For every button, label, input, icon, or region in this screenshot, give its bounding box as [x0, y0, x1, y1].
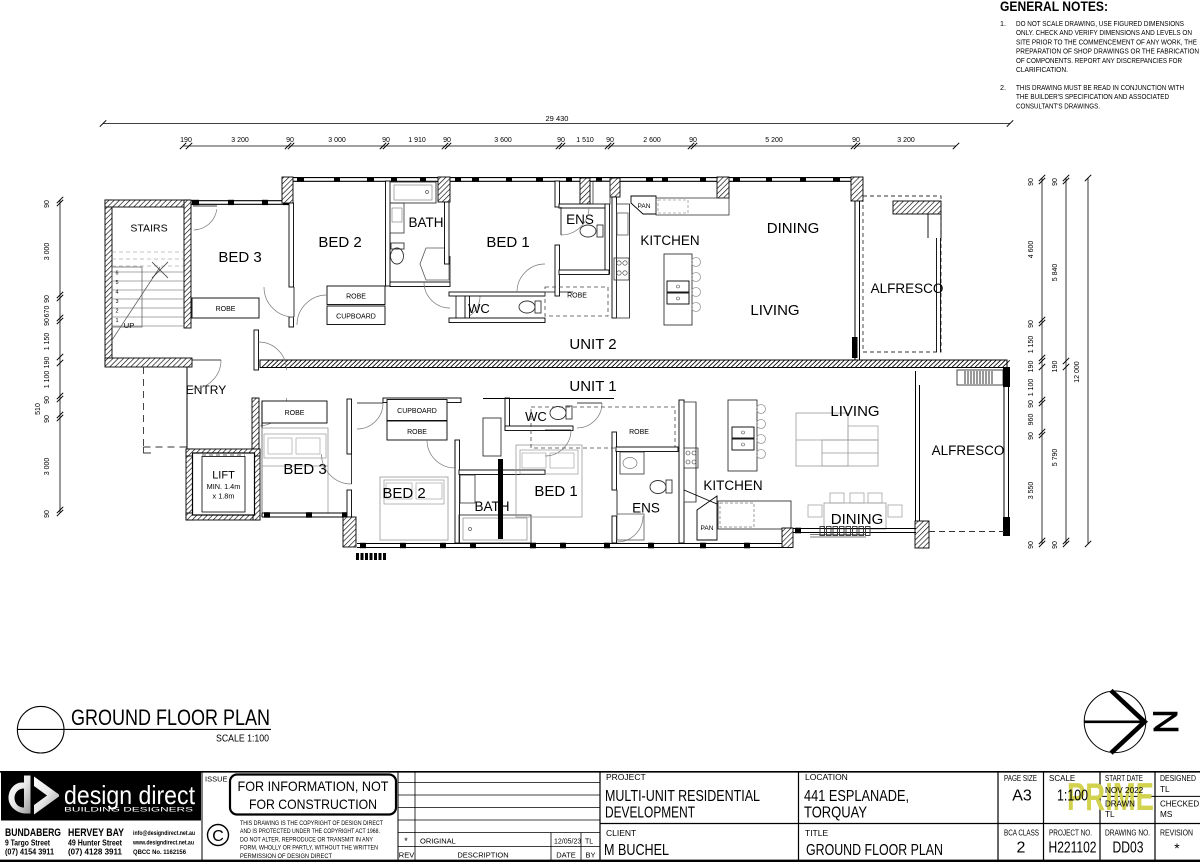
- svg-text:KITCHEN: KITCHEN: [640, 233, 699, 248]
- svg-text:1 100: 1 100: [1028, 379, 1035, 397]
- svg-text:BY: BY: [585, 851, 595, 860]
- svg-text:MS: MS: [1160, 810, 1173, 819]
- svg-text:90: 90: [1028, 178, 1035, 186]
- svg-text:GROUND FLOOR PLAN: GROUND FLOOR PLAN: [71, 705, 270, 730]
- svg-text:5 200: 5 200: [765, 137, 783, 144]
- svg-text:BED 3: BED 3: [218, 249, 261, 266]
- svg-text:3 200: 3 200: [231, 137, 249, 144]
- svg-text:(07) 4154 3911: (07) 4154 3911: [5, 847, 54, 857]
- svg-text:SITE PRIOR TO THE COMMENCEMENT: SITE PRIOR TO THE COMMENCEMENT OF ANY WO…: [1016, 37, 1197, 46]
- svg-text:*: *: [404, 836, 408, 846]
- svg-text:DRAWN: DRAWN: [1105, 800, 1135, 809]
- svg-text:info@designdirect.net.au: info@designdirect.net.au: [133, 830, 195, 837]
- svg-text:BED 1: BED 1: [534, 483, 577, 500]
- svg-text:BATH: BATH: [474, 499, 509, 514]
- svg-text:A3: A3: [1012, 788, 1032, 805]
- svg-text:90: 90: [44, 510, 51, 518]
- svg-text:960: 960: [1028, 414, 1035, 426]
- svg-text:PREPARATION OF SHOP DRAWINGS O: PREPARATION OF SHOP DRAWINGS OR THE FABR…: [1016, 47, 1199, 56]
- svg-text:GENERAL NOTES:: GENERAL NOTES:: [1000, 0, 1108, 14]
- svg-text:*: *: [1174, 840, 1180, 856]
- svg-text:UNIT 1: UNIT 1: [569, 378, 616, 395]
- svg-text:LIVING: LIVING: [750, 302, 799, 319]
- svg-text:90: 90: [1028, 320, 1035, 328]
- svg-text:DO NOT SCALE DRAWING, USE FIGU: DO NOT SCALE DRAWING, USE FIGURED DIMENS…: [1016, 19, 1184, 28]
- svg-text:REVISION: REVISION: [1160, 829, 1193, 838]
- svg-text:MIN. 1.4m: MIN. 1.4m: [207, 482, 241, 491]
- svg-text:1 150: 1 150: [44, 333, 51, 351]
- svg-text:DRAWING NO.: DRAWING NO.: [1105, 829, 1150, 838]
- svg-text:REV: REV: [399, 851, 414, 860]
- svg-text:TL: TL: [1160, 785, 1170, 794]
- svg-text:12/05/23: 12/05/23: [554, 839, 581, 846]
- svg-text:90: 90: [44, 295, 51, 303]
- svg-text:UNIT 2: UNIT 2: [569, 336, 616, 353]
- svg-text:DEVELOPMENT: DEVELOPMENT: [605, 805, 695, 822]
- svg-text:ISSUE: ISSUE: [205, 775, 228, 784]
- svg-text:90: 90: [286, 137, 294, 144]
- svg-text:29 430: 29 430: [546, 114, 569, 123]
- svg-text:LIVING: LIVING: [830, 403, 879, 420]
- svg-text:ROBE: ROBE: [407, 429, 427, 436]
- svg-text:1 510: 1 510: [576, 137, 594, 144]
- svg-text:(07) 4128 3911: (07) 4128 3911: [68, 847, 122, 857]
- svg-text:www.designdirect.net.au: www.designdirect.net.au: [132, 840, 194, 847]
- svg-text:GROUND FLOOR PLAN: GROUND FLOOR PLAN: [806, 842, 943, 859]
- svg-text:3 550: 3 550: [1028, 482, 1035, 500]
- svg-text:KITCHEN: KITCHEN: [703, 478, 762, 493]
- svg-text:MULTI-UNIT RESIDENTIAL: MULTI-UNIT RESIDENTIAL: [605, 788, 760, 805]
- svg-text:ALFRESCO: ALFRESCO: [871, 281, 944, 296]
- svg-text:DO NOT ALTER, REPRODUCE OR TRA: DO NOT ALTER, REPRODUCE OR TRANSMIT IN A…: [240, 836, 374, 843]
- svg-text:PROJECT NO.: PROJECT NO.: [1049, 829, 1092, 838]
- svg-text:DINING: DINING: [831, 511, 884, 528]
- svg-text:TORQUAY: TORQUAY: [804, 805, 867, 822]
- svg-text:90: 90: [44, 396, 51, 404]
- svg-text:DINING: DINING: [767, 220, 820, 237]
- svg-text:NOV 2022: NOV 2022: [1105, 786, 1144, 795]
- svg-text:LIFT: LIFT: [212, 470, 235, 482]
- svg-text:BED 1: BED 1: [486, 234, 529, 251]
- svg-text:DD03: DD03: [1113, 839, 1144, 856]
- svg-text:STAIRS: STAIRS: [130, 223, 167, 235]
- svg-text:5: 5: [115, 280, 118, 286]
- svg-text:PAN: PAN: [638, 203, 651, 210]
- svg-text:FOR CONSTRUCTION: FOR CONSTRUCTION: [249, 796, 377, 812]
- svg-text:90: 90: [1052, 178, 1059, 186]
- svg-text:BED 2: BED 2: [382, 485, 425, 502]
- svg-text:3 000: 3 000: [328, 137, 346, 144]
- svg-text:ORIGINAL: ORIGINAL: [420, 837, 456, 846]
- svg-text:ENS: ENS: [566, 212, 594, 227]
- svg-text:CUPBOARD: CUPBOARD: [397, 408, 437, 415]
- svg-text:BATH: BATH: [408, 215, 443, 230]
- svg-text:3 000: 3 000: [44, 243, 51, 261]
- svg-text:PAN: PAN: [701, 525, 714, 532]
- svg-text:SCALE 1:100: SCALE 1:100: [216, 733, 269, 745]
- svg-text:90: 90: [382, 137, 390, 144]
- svg-text:SCALE: SCALE: [1049, 774, 1075, 783]
- svg-text:3 200: 3 200: [897, 137, 915, 144]
- svg-text:BCA CLASS: BCA CLASS: [1004, 829, 1039, 838]
- svg-text:PERMISSION OF DESIGN DIRECT: PERMISSION OF DESIGN DIRECT: [240, 853, 332, 860]
- svg-text:3 600: 3 600: [494, 137, 512, 144]
- svg-text:THIS DRAWING MUST BE READ IN C: THIS DRAWING MUST BE READ IN CONJUNCTION…: [1016, 83, 1184, 92]
- svg-text:H221102: H221102: [1049, 839, 1097, 856]
- svg-text:90: 90: [1028, 541, 1035, 549]
- svg-text:1:100: 1:100: [1057, 788, 1088, 805]
- svg-text:1 910: 1 910: [408, 137, 426, 144]
- svg-text:ROBE: ROBE: [285, 410, 305, 417]
- svg-text:1 150: 1 150: [1028, 336, 1035, 354]
- svg-text:DATE: DATE: [556, 851, 575, 860]
- svg-text:4: 4: [115, 290, 118, 296]
- svg-text:x 1.8m: x 1.8m: [213, 492, 235, 501]
- svg-text:4 600: 4 600: [1028, 241, 1035, 259]
- svg-text:TITLE: TITLE: [805, 828, 828, 838]
- svg-text:WC: WC: [525, 409, 547, 424]
- svg-text:190: 190: [1028, 361, 1035, 373]
- svg-text:FORM, WHOLLY OR PARTLY, WITHOU: FORM, WHOLLY OR PARTLY, WITHOUT THE WRIT…: [240, 845, 378, 852]
- svg-text:2 600: 2 600: [643, 137, 661, 144]
- svg-text:UP: UP: [124, 321, 134, 330]
- svg-text:PROJECT: PROJECT: [606, 772, 646, 782]
- svg-text:CLARIFICATION.: CLARIFICATION.: [1016, 65, 1068, 74]
- svg-text:90: 90: [852, 137, 860, 144]
- svg-text:5 790: 5 790: [1052, 449, 1059, 467]
- svg-text:CHECKED: CHECKED: [1160, 800, 1199, 809]
- svg-text:3 000: 3 000: [44, 458, 51, 476]
- svg-text:ROBE: ROBE: [567, 293, 587, 300]
- svg-text:3: 3: [115, 299, 118, 305]
- svg-text:DESIGNED: DESIGNED: [1160, 774, 1196, 783]
- svg-text:WC: WC: [468, 301, 490, 316]
- svg-text:CLIENT: CLIENT: [606, 828, 636, 838]
- svg-text:90: 90: [1028, 400, 1035, 408]
- svg-text:1: 1: [115, 318, 118, 324]
- svg-text:design direct: design direct: [64, 780, 196, 810]
- svg-text:BED 2: BED 2: [318, 234, 361, 251]
- svg-text:ROBE: ROBE: [346, 294, 366, 301]
- svg-text:90: 90: [1028, 432, 1035, 440]
- svg-text:2: 2: [115, 309, 118, 315]
- svg-text:190: 190: [1052, 361, 1059, 373]
- svg-text:90: 90: [606, 137, 614, 144]
- svg-text:FOR INFORMATION, NOT: FOR INFORMATION, NOT: [238, 778, 389, 794]
- svg-text:5 840: 5 840: [1052, 264, 1059, 282]
- svg-text:1.: 1.: [1000, 19, 1006, 28]
- svg-text:BED 3: BED 3: [283, 461, 326, 478]
- svg-text:THIS DRAWING IS THE COPYRIGHT: THIS DRAWING IS THE COPYRIGHT OF DESIGN …: [240, 820, 383, 827]
- svg-text:441 ESPLANADE,: 441 ESPLANADE,: [804, 788, 909, 805]
- svg-text:510: 510: [35, 403, 42, 415]
- svg-text:2: 2: [1017, 839, 1026, 856]
- svg-text:LOCATION: LOCATION: [805, 772, 848, 782]
- svg-text:90: 90: [557, 137, 565, 144]
- svg-text:190: 190: [44, 357, 51, 369]
- svg-text:ONLY. CHECK AND VERIFY DIMENSI: ONLY. CHECK AND VERIFY DIMENSIONS AND LE…: [1016, 28, 1192, 37]
- svg-text:2.: 2.: [1000, 83, 1006, 92]
- svg-text:1 100: 1 100: [44, 371, 51, 389]
- svg-text:DESCRIPTION: DESCRIPTION: [457, 851, 508, 860]
- svg-text:670: 670: [44, 306, 51, 318]
- svg-text:CUPBOARD: CUPBOARD: [336, 314, 376, 321]
- svg-text:6: 6: [115, 271, 118, 277]
- svg-text:BUILDING DESIGNERS: BUILDING DESIGNERS: [64, 807, 193, 814]
- svg-text:90: 90: [443, 137, 451, 144]
- svg-text:ROBE: ROBE: [216, 306, 236, 313]
- svg-text:90: 90: [1052, 541, 1059, 549]
- svg-text:90: 90: [44, 415, 51, 423]
- svg-text:PAGE SIZE: PAGE SIZE: [1004, 774, 1037, 783]
- svg-text:12 000: 12 000: [1074, 361, 1081, 383]
- svg-text:190: 190: [180, 137, 192, 144]
- svg-text:OF COMPONENTS. REPORT ANY DISC: OF COMPONENTS. REPORT ANY DISCREPANCIES …: [1016, 56, 1182, 65]
- svg-text:START DATE: START DATE: [1105, 774, 1143, 783]
- svg-text:QBCC No. 1162156: QBCC No. 1162156: [133, 849, 186, 856]
- svg-text:90: 90: [689, 137, 697, 144]
- svg-text:CONSULTANT'S DRAWINGS.: CONSULTANT'S DRAWINGS.: [1016, 101, 1100, 110]
- svg-text:90: 90: [44, 200, 51, 208]
- svg-text:C: C: [212, 828, 224, 845]
- svg-text:ENS: ENS: [632, 501, 660, 516]
- svg-text:M BUCHEL: M BUCHEL: [604, 842, 669, 859]
- svg-text:ROBE: ROBE: [629, 429, 649, 436]
- svg-text:THE BUILDER'S SPECIFICATION AN: THE BUILDER'S SPECIFICATION AND ASSOCIAT…: [1016, 92, 1169, 101]
- svg-text:ALFRESCO: ALFRESCO: [932, 443, 1005, 458]
- svg-text:90: 90: [44, 318, 51, 326]
- svg-text:TL: TL: [585, 839, 593, 846]
- svg-text:AND IS PROTECTED UNDER THE COP: AND IS PROTECTED UNDER THE COPYRIGHT ACT…: [240, 828, 380, 835]
- svg-text:TL: TL: [1105, 810, 1115, 819]
